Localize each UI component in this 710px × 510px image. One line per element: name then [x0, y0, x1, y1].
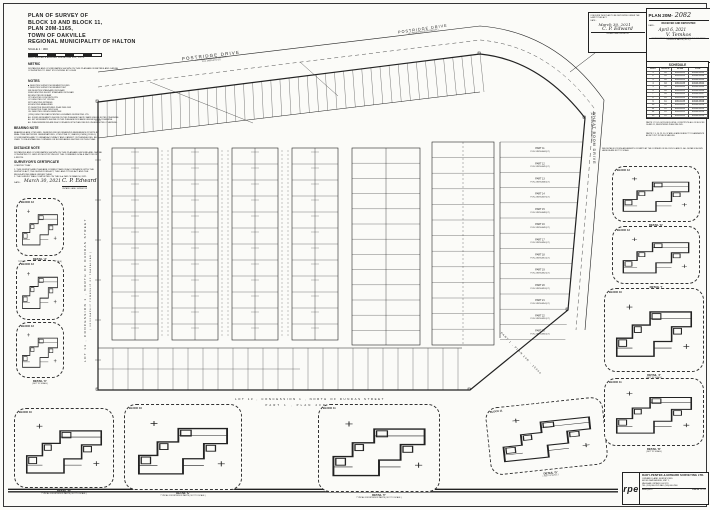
- pin-label: P.I.N. 24929-0845 (LT): [531, 166, 550, 168]
- schedule-cell: 11: [660, 104, 672, 107]
- schedule-row-12: 131120M-116524929-0853: [647, 115, 708, 119]
- detail-bubble-ring: BLOCK 13: [16, 260, 64, 320]
- schedule-cell: 24929-0848: [689, 97, 708, 100]
- detail-bubble-ring: BLOCK 10: [124, 404, 242, 490]
- schedule-cell: 20M-1165: [672, 72, 689, 75]
- metric-heading: METRIC: [28, 63, 40, 67]
- schedule-cell: 24929-0847: [689, 93, 708, 96]
- detail-bubble-6: BLOCK 11DETAIL 'G'( NOT TO SCALE ): [484, 396, 609, 483]
- schedule-cell: 20M-1165: [672, 75, 689, 78]
- bearing-note-text: BEARINGS ARE UTM GRID, DERIVED FROM OBSE…: [14, 132, 102, 142]
- schedule-cell: 24929-0844: [689, 82, 708, 85]
- distance-note-text: DISTANCES AND COORDINATES SHOWN ON THIS …: [14, 152, 102, 160]
- part-label: PART 23: [535, 330, 545, 333]
- detail-block-label: BLOCK 10: [609, 291, 622, 294]
- company-web: www.r-pe.ca: [642, 489, 652, 491]
- west-township-label: LOT 13 , CONCESSION 1 , NORTH OF DUNDAS …: [84, 218, 88, 362]
- pin-label: P.I.N. 24929-0844 (LT): [531, 151, 550, 153]
- note-footnote-2: ALL PLAN DIMENSIONS ARE IN ACCORDANCE WI…: [28, 122, 128, 124]
- schedule-cell: 24929-0843: [689, 79, 708, 82]
- schedule-cell: 24929-0842: [689, 75, 708, 78]
- detail-mini-plan: [485, 397, 607, 475]
- schedule-cell: 5: [647, 86, 660, 89]
- detail-bubble-ring: BLOCK 11: [484, 396, 608, 476]
- schedule-cell: 10: [660, 86, 672, 89]
- schedule-cell: 20M-1165: [672, 93, 689, 96]
- detail-mini-plan: [15, 409, 113, 487]
- detail-mini-plan: [17, 323, 63, 377]
- schedule-cell: 24929-0846: [689, 90, 708, 93]
- schedule-cell: 10: [660, 75, 672, 78]
- detail-block-label: BLOCK 11: [323, 407, 336, 410]
- schedule-cell: 8: [647, 97, 660, 100]
- schedule-cell: 24929-0852: [689, 111, 708, 114]
- detail-bubble-ring: BLOCK 13: [16, 198, 64, 256]
- job-label: JOB No.: [692, 489, 699, 491]
- south-township-label: LOT 13 , CONCESSION 1 , NORTH OF DUNDAS …: [230, 398, 390, 401]
- title-line-0: PLAN OF SURVEY OF: [28, 13, 136, 20]
- detail-bubble-ring: BLOCK 10: [14, 408, 114, 488]
- schedule-cell: 12: [647, 111, 660, 114]
- pin-label: P.I.N. 24929-0846 (LT): [531, 181, 550, 183]
- notes-heading: NOTES: [28, 79, 40, 83]
- street-name: WHEAT BOOM DRIVE: [592, 112, 596, 165]
- detail-mini-plan: [613, 227, 699, 283]
- schedule-cell: 24929-0849: [689, 100, 708, 103]
- schedule-cell: 20M-1165: [672, 115, 689, 118]
- distance-note-heading: DISTANCE NOTE: [14, 147, 40, 151]
- schedule-cell: 11: [660, 108, 672, 111]
- schedule-cell: BLOCK: [660, 68, 672, 71]
- part-label: PART 16: [535, 223, 545, 226]
- registrar-title: REPRESENTATIVE FOR THE LAND REGISTRAR FO…: [649, 38, 709, 43]
- detail-scale-note: ( NOT TO SCALE ): [604, 451, 704, 453]
- pin-label: P.I.N. 24929-0848 (LT): [531, 212, 550, 214]
- part-label: PART 14: [535, 193, 545, 196]
- detail-scale-note: ( NOT TO SCALE ): [16, 383, 64, 385]
- part-label: PART 12: [535, 162, 545, 165]
- schedule-cell: 11: [660, 97, 672, 100]
- schedule-cell: 24929-0850: [689, 104, 708, 107]
- schedule-cell: 4: [647, 82, 660, 85]
- easement-note: SEE DETAILS FOR ENLARGEMENTS OF PARTS AT…: [602, 148, 706, 152]
- company-title-block: rpe RADY-PENTEK & EDWARD SURVEYING LTD. …: [622, 472, 709, 505]
- survey-sheet: PART 11P.I.N. 24929-0844 (LT)PART 12P.I.…: [0, 0, 710, 510]
- detail-mini-plan: [605, 289, 703, 371]
- schedule-cell: 11: [660, 115, 672, 118]
- schedule-cell: 20M-1165: [672, 104, 689, 107]
- detail-bubble-5: BLOCK 11DETAIL 'F'TYPICAL FOR INTERIOR P…: [318, 404, 440, 499]
- schedule-cell: 24929-0845: [689, 86, 708, 89]
- schedule-rows: PARTBLOCKPLANP.I.N.11020M-116524929-0841…: [647, 68, 708, 118]
- certificate-intro: I CERTIFY THAT :: [14, 165, 32, 168]
- schedule-cell: 11: [660, 100, 672, 103]
- company-logo: rpe: [623, 473, 640, 504]
- detail-mini-plan: [125, 405, 241, 489]
- detail-block-label: BLOCK 13: [617, 229, 630, 232]
- detail-bubble-7: BLOCK 13DETAIL 'H'( NOT TO SCALE ): [612, 166, 700, 229]
- plan-number-label: PLAN 20M-: [649, 13, 673, 18]
- detail-bubble-8: BLOCK 13DETAIL 'I'( NOT TO SCALE ): [612, 226, 700, 291]
- certificate-heading: SURVEYOR'S CERTIFICATE: [14, 160, 59, 164]
- schedule-cell: 10: [660, 93, 672, 96]
- detail-bubble-ring: BLOCK 10: [604, 288, 704, 372]
- west-township-sub-label: ( GEOGRAPHIC TOWNSHIP OF TRAFALGAR ): [90, 251, 92, 330]
- detail-bubble-3: BLOCK 10DETAIL 'D'TYPICAL FOR INTERIOR P…: [14, 408, 114, 495]
- schedule-note-2: PARTS 2, 9, 16, 23, 30, 37 AND 44 ARE SU…: [646, 133, 706, 137]
- schedule-cell: 20M-1165: [672, 108, 689, 111]
- schedule-cell: 3: [647, 79, 660, 82]
- schedule-cell: 20M-1165: [672, 82, 689, 85]
- schedule-cell: 24929-0841: [689, 72, 708, 75]
- detail-mini-plan: [17, 199, 63, 255]
- schedule-cell: 10: [660, 79, 672, 82]
- schedule-cell: 10: [660, 90, 672, 93]
- schedule-cell: 2: [647, 75, 660, 78]
- deposit-statement-box: I REQUIRE THIS PLAN TO BE DEPOSITED UNDE…: [588, 12, 647, 53]
- title-line-1: BLOCK 10 AND BLOCK 11,: [28, 20, 136, 27]
- detail-bubble-1: BLOCK 13DETAIL 'B'( NOT TO SCALE ): [16, 260, 64, 327]
- detail-bubble-ring: BLOCK 11: [604, 378, 704, 446]
- plan-number-value: 2082: [675, 11, 691, 19]
- schedule-cell: 10: [647, 104, 660, 107]
- certificate-date: March 30, 2021: [24, 179, 61, 184]
- schedule-cell: 11: [660, 111, 672, 114]
- part-label: PART 15: [535, 208, 545, 211]
- title-line-2: PLAN 20M-1165,: [28, 26, 136, 33]
- detail-bubble-ring: BLOCK 13: [612, 166, 700, 222]
- pin-label: P.I.N. 24929-0853 (LT): [531, 288, 550, 290]
- pin-label: P.I.N. 24929-0852 (LT): [531, 273, 550, 275]
- detail-scale-note: TYPICAL FOR INTERIOR PARTS ( NOT TO SCAL…: [124, 495, 242, 497]
- plan-number-box: PLAN 20M- 2082 RECEIVED AND DEPOSITED DA…: [646, 8, 710, 63]
- detail-scale-note: TYPICAL FOR INTERIOR PARTS ( NOT TO SCAL…: [14, 493, 114, 495]
- scale-label: SCALE 1 : 300: [28, 48, 48, 52]
- part-label: PART 21: [535, 299, 545, 302]
- plan-title: PLAN OF SURVEY OFBLOCK 10 AND BLOCK 11,P…: [28, 13, 136, 46]
- certificate-date-label: DATE :: [14, 182, 21, 185]
- pin-label: P.I.N. 24929-0855 (LT): [531, 318, 550, 320]
- pin-label: P.I.N. 24929-0849 (LT): [531, 227, 550, 229]
- detail-mini-plan: [17, 261, 63, 319]
- pin-label: P.I.N. 24929-0847 (LT): [531, 197, 550, 199]
- schedule-cell: 7: [647, 93, 660, 96]
- detail-bubble-10: BLOCK 11DETAIL 'K'( NOT TO SCALE ): [604, 378, 704, 453]
- pin-label: P.I.N. 24929-0851 (LT): [531, 257, 550, 259]
- note-line-12: (1254) DENOTES RADY-PENTEK & EDWARD SURV…: [28, 114, 89, 116]
- part-label: PART 18: [535, 254, 545, 257]
- schedule-cell: P.I.N.: [689, 68, 708, 71]
- detail-block-label: BLOCK 13: [21, 325, 34, 328]
- schedule-cell: 1: [647, 72, 660, 75]
- certificate-signer-title: ONTARIO LAND SURVEYOR: [62, 186, 87, 190]
- certificate-signature: C. P. Edward: [62, 178, 97, 184]
- pin-label: P.I.N. 24929-0854 (LT): [531, 303, 550, 305]
- part-label: PART 20: [535, 284, 545, 287]
- schedule-cell: 10: [660, 82, 672, 85]
- part-label: PART 11: [535, 147, 545, 150]
- schedule-cell: 20M-1165: [672, 97, 689, 100]
- detail-scale-note: TYPICAL FOR INTERIOR PARTS ( NOT TO SCAL…: [318, 497, 440, 499]
- detail-mini-plan: [605, 379, 703, 445]
- detail-mini-plan: [319, 405, 439, 491]
- notes-footnotes: ALL FOUND MONUMENTS SHOWN ON THIS PLAN A…: [28, 117, 128, 124]
- schedule-cell: 24929-0853: [689, 115, 708, 118]
- schedule-cell: 11: [647, 108, 660, 111]
- pin-label: P.I.N. 24929-0850 (LT): [531, 242, 550, 244]
- detail-mini-plan: [613, 167, 699, 221]
- detail-bubble-ring: BLOCK 11: [318, 404, 440, 492]
- detail-bubble-0: BLOCK 13DETAIL 'A'TYPICAL FOR CORNER PAR…: [16, 198, 64, 263]
- schedule-cell: 13: [647, 115, 660, 118]
- detail-bubble-9: BLOCK 10DETAIL 'J'( NOT TO SCALE ): [604, 288, 704, 379]
- pin-label: P.I.N. 24929-0856 (LT): [531, 333, 550, 335]
- schedule-cell: 20M-1165: [672, 90, 689, 93]
- detail-block-label: BLOCK 13: [21, 263, 34, 266]
- schedule-note-1: PARTS 1 TO 45, BOTH INCLUSIVE, CONSTITUT…: [646, 122, 706, 126]
- title-line-4: REGIONAL MUNICIPALITY OF HALTON: [28, 39, 136, 46]
- detail-bubble-2: BLOCK 13DETAIL 'C'( NOT TO SCALE ): [16, 322, 64, 385]
- notes-legend: ■ DENOTES SURVEY MONUMENT FOUND□ DENOTES…: [28, 85, 89, 116]
- part-label: PART 17: [535, 238, 545, 241]
- schedule-cell: PLAN: [672, 68, 689, 71]
- detail-bubble-ring: BLOCK 13: [612, 226, 700, 284]
- detail-block-label: BLOCK 13: [21, 201, 34, 204]
- schedule-cell: 20M-1165: [672, 79, 689, 82]
- part-label: PART 19: [535, 269, 545, 272]
- wheat-boom-drive-label: WHEAT BOOM DRIVE ( BY REGISTERED PLAN 20…: [590, 112, 596, 165]
- detail-bubble-ring: BLOCK 13: [16, 322, 64, 378]
- detail-block-label: BLOCK 11: [609, 381, 622, 384]
- deposit-signer-title: ONTARIO LAND SURVEYOR: [591, 32, 645, 35]
- part-label: PART 13: [535, 178, 545, 181]
- detail-block-label: BLOCK 10: [19, 411, 32, 414]
- metric-text: DISTANCES AND COORDINATES SHOWN ON THIS …: [28, 68, 128, 73]
- schedule-cell: PART: [647, 68, 660, 71]
- detail-bubble-4: BLOCK 10DETAIL 'E'TYPICAL FOR INTERIOR P…: [124, 404, 242, 497]
- schedule-table: SCHEDULE PARTBLOCKPLANP.I.N.11020M-11652…: [646, 61, 709, 119]
- deposit-statement: I REQUIRE THIS PLAN TO BE DEPOSITED UNDE…: [591, 15, 645, 19]
- schedule-cell: 20M-1165: [672, 111, 689, 114]
- schedule-cell: 24929-0851: [689, 108, 708, 111]
- detail-block-label: BLOCK 10: [129, 407, 142, 410]
- schedule-cell: 10: [660, 72, 672, 75]
- schedule-cell: 20M-1165: [672, 100, 689, 103]
- bearing-note-heading: BEARING NOTE: [14, 127, 38, 131]
- firm-line: RADY-PENTEK & EDWARD SURVEYING LTD., O.L…: [28, 57, 84, 60]
- schedule-cell: 20M-1165: [672, 86, 689, 89]
- detail-block-label: BLOCK 13: [617, 169, 630, 172]
- job-value: 20-135: [700, 489, 706, 491]
- schedule-cell: 6: [647, 90, 660, 93]
- part-label: PART 22: [535, 314, 545, 317]
- title-line-3: TOWN OF OAKVILLE: [28, 33, 136, 40]
- schedule-cell: 9: [647, 100, 660, 103]
